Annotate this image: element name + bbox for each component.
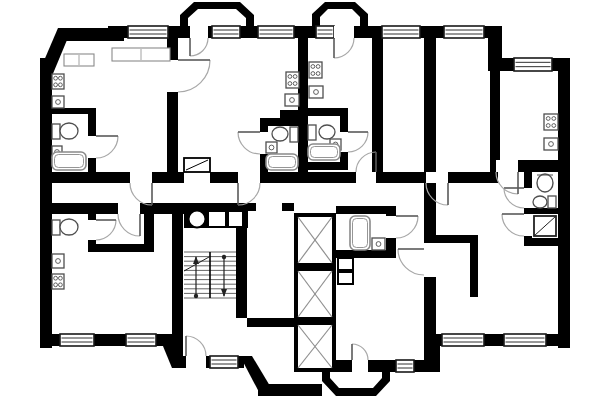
stove-icon [286,72,299,88]
window-5 [382,26,420,38]
wall-segment [524,208,532,214]
window-7 [514,58,552,71]
wall-segment [336,206,394,214]
toilet-tank [52,220,60,235]
wall-segment [424,38,436,172]
wall-segment [414,360,440,372]
sink-icon [372,238,385,250]
wall-segment [558,58,570,348]
window-13 [126,334,156,346]
door-balcony-left-opening [190,26,208,38]
door-apt-center-left-opening [238,172,260,183]
stair-up-start-dot [194,294,198,298]
sink-icon [544,138,558,150]
wall-segment [52,203,118,214]
floor-plan-svg [0,0,600,400]
door-apt-center-right-opening [356,172,376,183]
toilet-tank [548,196,556,208]
wall-segment [308,162,348,170]
wall-segment [94,334,126,346]
wall-segment [210,172,238,183]
wall-segment [488,26,502,71]
wall-segment [376,172,426,183]
sink-icon [309,86,323,98]
door-apt-lower-left-opening [118,203,140,214]
wall-segment [282,203,294,211]
wall-segment [490,160,496,172]
wall-segment [144,214,154,244]
vent-shaft [228,211,243,227]
toilet-tank [52,124,60,139]
sink-icon [266,142,277,153]
window-9 [504,334,546,346]
door-bath-upper-left-opening [88,136,96,158]
wall-segment [52,108,96,114]
window-11 [210,356,238,368]
wall-segment [88,114,96,136]
wall-segment [40,58,52,348]
wall-segment [88,240,96,244]
window-8 [442,334,484,346]
door-bay-room-opening [352,360,368,372]
wall-segment [280,110,298,118]
door-balcony-center-opening [334,26,354,38]
wall-segment [248,203,256,211]
window-6 [444,26,484,38]
stove-icon [52,274,64,289]
wall-segment [88,214,96,220]
wall-segment [298,38,308,183]
wall-segment [308,108,348,116]
wall-segment [247,318,294,327]
wall-segment [260,118,268,132]
vent-shaft [208,211,226,227]
wall-segment [88,244,154,252]
toilet-bowl [272,127,288,141]
door-room-divider-opening [167,60,178,92]
wall-segment [236,228,247,318]
stove-icon [309,62,322,78]
wall-segment [167,92,178,172]
wall-segment [524,238,570,246]
toilet-bowl [60,219,78,235]
wall-segment [546,334,570,346]
wall-segment [88,158,96,172]
wall-segment [484,334,504,346]
wall-segment [152,172,184,183]
wall-segment [518,160,562,172]
door-bath-right-opening [524,188,532,208]
wall-segment [448,172,498,183]
window-3 [258,26,294,38]
wall-segment [424,235,478,243]
toilet-tank [290,127,298,142]
stove-icon [52,74,64,89]
wall-segment [490,71,500,161]
wall-segment [470,243,478,297]
toilet-tank [308,125,316,140]
window-4 [316,26,334,38]
wall-segment [524,172,532,188]
wall-segment [420,26,444,38]
wall-segment [44,334,60,346]
door-bay-hall-opening [424,249,436,275]
wall-segment [424,277,436,360]
wall-segment [336,250,396,258]
stove-icon [544,114,558,130]
floor-plan-image [0,0,600,400]
wall-segment [532,208,562,214]
window-12 [60,334,94,346]
window-2 [212,26,240,38]
door-apt-right-opening [426,172,448,183]
door-entrance-porch-opening [186,356,206,368]
vent-shaft [338,258,353,270]
window-1 [128,26,168,38]
door-bath-core-opening [386,216,396,238]
wall-segment [340,116,348,132]
wall-segment [52,172,130,183]
wall-segment [116,26,128,38]
vent-shaft [338,272,353,284]
wall-segment [386,206,396,216]
wall-segment [424,183,436,243]
door-kitchen-right-opening [496,160,518,172]
door-wc-lower-left-opening [88,220,96,240]
stair-down-start-dot [222,255,226,259]
door-apt-upper-left-opening [130,172,152,183]
wall-segment [172,203,183,356]
sink-icon [52,96,64,108]
toilet-bowl [533,196,547,208]
wall-segment [502,58,514,71]
garbage-chute-icon [189,211,206,228]
washbasin-icon [537,174,553,192]
toilet-bowl [319,125,335,139]
toilet-bowl [60,123,78,139]
sink-icon [285,94,299,106]
door-shower-right-opening [524,214,532,236]
sink-icon [52,254,64,268]
window-10 [396,360,414,372]
